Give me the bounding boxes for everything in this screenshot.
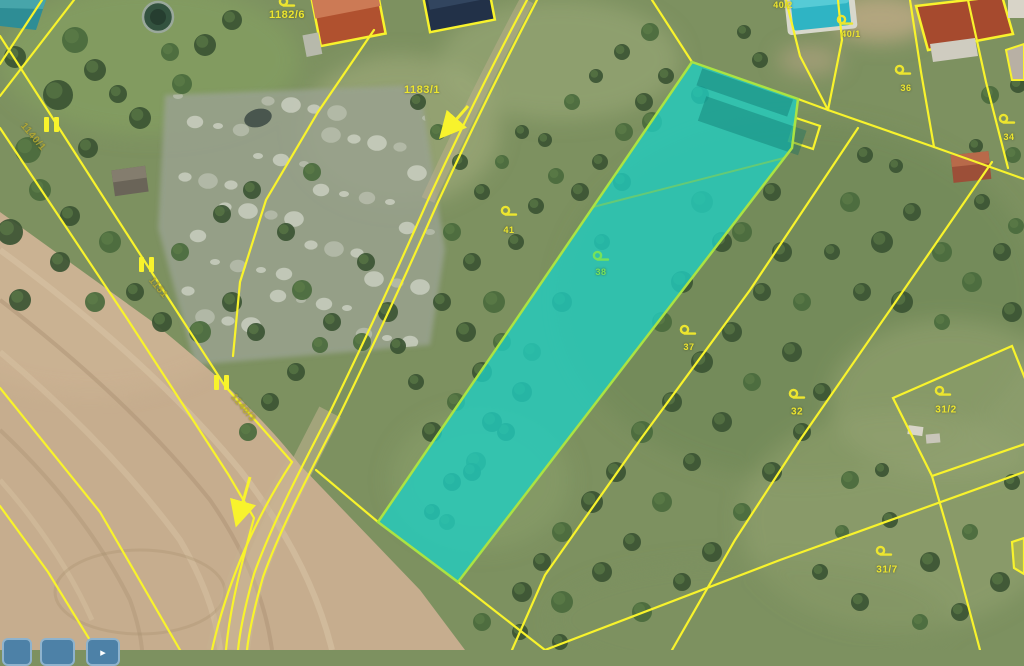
map-toolbar-button-1[interactable] bbox=[2, 638, 32, 666]
map-toolbar-button-3[interactable]: ▸ bbox=[86, 638, 120, 666]
orthophoto-and-parcel-lines bbox=[0, 0, 1024, 650]
cadastral-map-canvas[interactable]: 1182/61183/140/240/136344138373231/231/7… bbox=[0, 0, 1024, 650]
button-icon: ▸ bbox=[100, 646, 106, 659]
map-toolbar-button-2[interactable] bbox=[40, 638, 75, 666]
